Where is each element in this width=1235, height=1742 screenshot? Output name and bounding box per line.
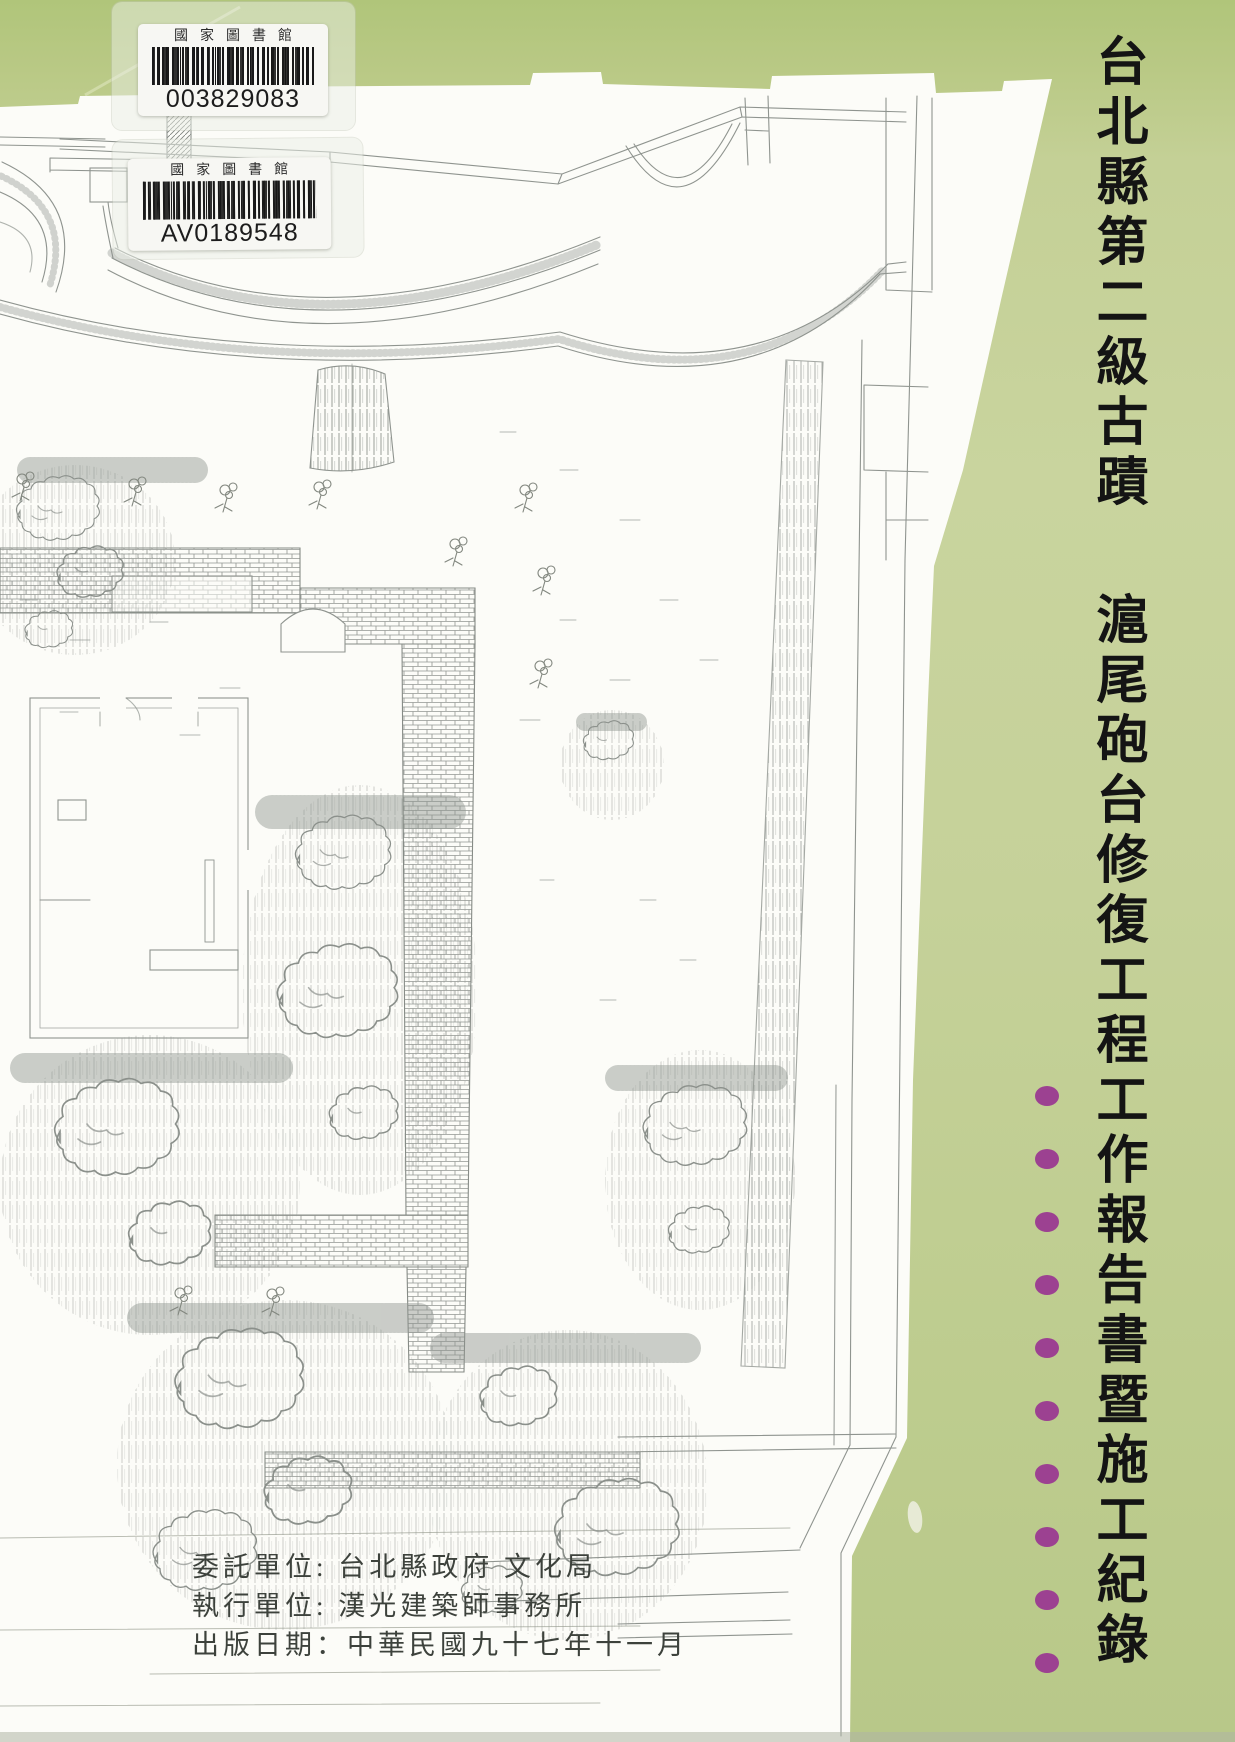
credit-line-publish-date: 出版日期：中華民國九十七年十一月 [192, 1626, 688, 1665]
bullet-dot [1035, 1275, 1059, 1295]
library-name: 國家圖書館 [162, 29, 304, 44]
barcode-number: AV0189548 [161, 220, 299, 246]
book-cover: 國家圖書館 003829083 國家圖書館 AV0189548 台北縣第二級古蹟… [0, 0, 1235, 1742]
barcode-icon [142, 181, 316, 220]
credit-line-commissioner: 委託單位: 台北縣政府 文化局 [192, 1548, 688, 1587]
cover-title: 滬尾砲台修復工程工作報告書暨施工紀錄 [1090, 592, 1142, 1672]
bullet-dot [1035, 1590, 1059, 1610]
bullet-dot [1035, 1401, 1059, 1421]
bullet-dot [1035, 1086, 1059, 1106]
barcode-number: 003829083 [166, 87, 300, 112]
bullet-dot [1035, 1653, 1059, 1673]
library-name: 國家圖書館 [158, 162, 300, 179]
credit-line-executor: 執行單位: 漢光建築師事務所 [192, 1587, 688, 1626]
scan-edge [0, 1732, 1235, 1742]
bullet-dot [1035, 1149, 1059, 1169]
title-dots [1035, 1086, 1059, 1673]
barcode-icon [152, 47, 314, 85]
bullet-dot [1035, 1338, 1059, 1358]
bullet-dot [1035, 1464, 1059, 1484]
bullet-dot [1035, 1527, 1059, 1547]
cover-scuff [906, 1500, 924, 1534]
library-barcode-label-1: 國家圖書館 003829083 [138, 24, 328, 116]
credits-block: 委託單位: 台北縣政府 文化局 執行單位: 漢光建築師事務所 出版日期：中華民國… [192, 1548, 688, 1665]
library-barcode-label-2: 國家圖書館 AV0189548 [128, 157, 332, 251]
cover-classification: 台北縣第二級古蹟 [1090, 34, 1142, 514]
bullet-dot [1035, 1212, 1059, 1232]
